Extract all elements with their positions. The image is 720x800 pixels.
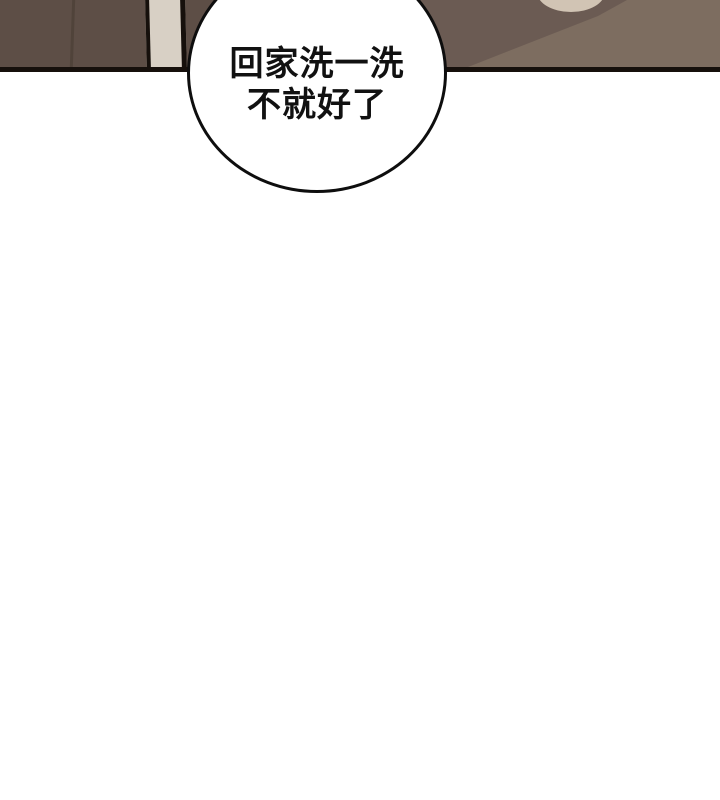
comic-page: 回家洗一洗 不就好了 — [0, 0, 720, 800]
speech-bubble-text: 回家洗一洗 不就好了 — [190, 44, 444, 126]
speech-bubble-text-line-1: 回家洗一洗 — [190, 44, 444, 85]
wardrobe-seam-line — [70, 0, 75, 67]
speech-bubble-text-line-2: 不就好了 — [190, 85, 444, 126]
speech-bubble: 回家洗一洗 不就好了 — [187, 0, 447, 193]
wardrobe-wall — [0, 0, 215, 67]
door-frame-strip — [145, 0, 187, 67]
